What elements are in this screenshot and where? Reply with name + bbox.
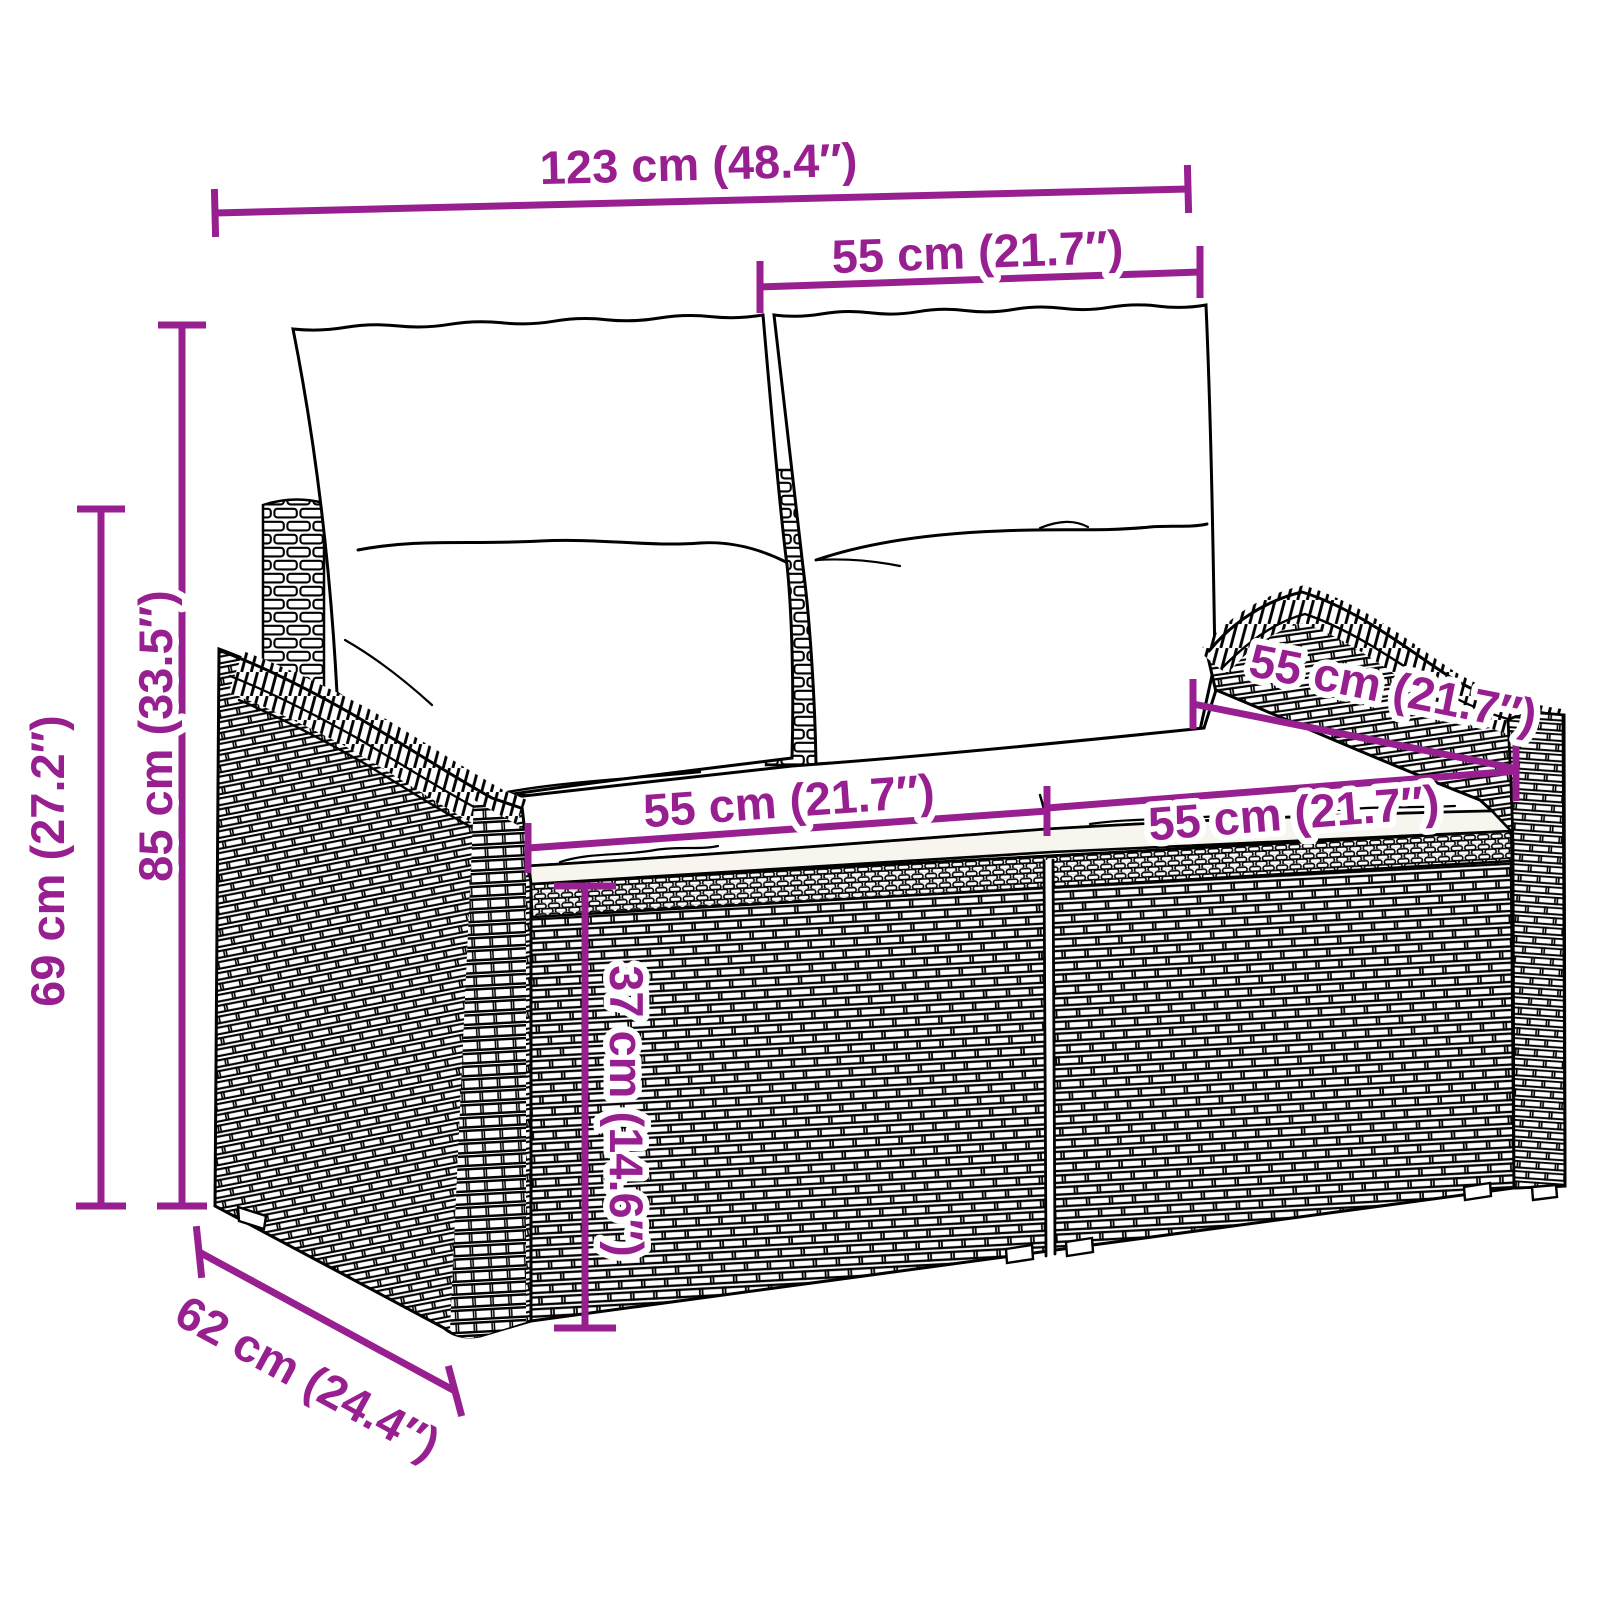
svg-text:85 cm (33.5″): 85 cm (33.5″)	[129, 590, 182, 882]
svg-text:69 cm (27.2″): 69 cm (27.2″)	[21, 715, 74, 1007]
svg-text:37 cm (14.6″): 37 cm (14.6″)	[600, 965, 653, 1257]
svg-text:55 cm (21.7″): 55 cm (21.7″)	[831, 220, 1124, 283]
svg-text:123 cm (48.4″): 123 cm (48.4″)	[539, 133, 858, 194]
